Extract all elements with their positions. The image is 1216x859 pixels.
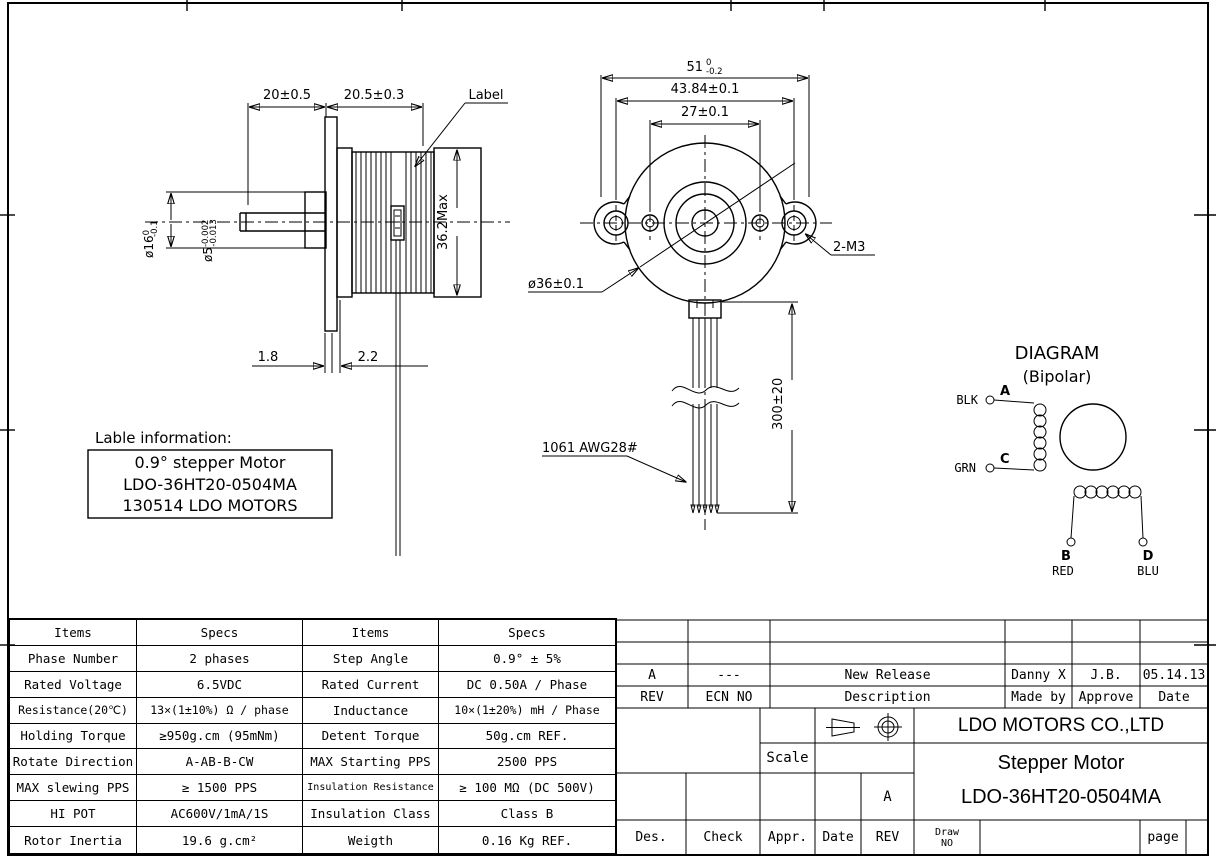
spec-header-items-1: Items	[10, 620, 137, 646]
terminal-b: B	[1061, 549, 1071, 564]
rev-value: A	[616, 664, 688, 686]
made-by-header: Made by	[1005, 686, 1072, 708]
wire-color-blu: BLU	[1137, 564, 1159, 578]
rev-header: REV	[616, 686, 688, 708]
front-view: 27±0.1 43.84±0.1 51 0 -0.2 ø36±0.1 2-M3 …	[528, 58, 875, 530]
spec-cell: 2500 PPS	[439, 749, 615, 775]
size-rev-value: A	[861, 773, 914, 820]
spec-cell: DC 0.50A / Phase	[439, 672, 615, 698]
terminal-a: A	[1000, 384, 1010, 399]
wire-bundle	[672, 300, 739, 513]
label-callout: Label	[468, 88, 503, 103]
dim-small-hole-span: 27±0.1	[681, 105, 729, 120]
footer-rev-label: REV	[861, 820, 914, 855]
dim-shaft-dia-base: ø5	[201, 247, 215, 262]
draw-no-line1: Draw	[935, 827, 959, 838]
dim-ear-hole-span: 43.84±0.1	[671, 82, 740, 97]
terminal-d: D	[1143, 549, 1154, 564]
dim-body-length: 20.5±0.3	[344, 88, 405, 103]
spec-header-items-2: Items	[303, 620, 439, 646]
dim-flange-thickness: 1.8	[258, 350, 279, 365]
dim-shaft-diameter: ø5-0.002-0.013	[201, 219, 219, 262]
screw-note: 2-M3	[833, 240, 865, 255]
wire-color-blk: BLK	[956, 393, 978, 407]
wiring-diagram: DIAGRAM (Bipolar) BLK A GRN C B RED	[954, 343, 1159, 578]
spec-cell: 50g.cm REF.	[439, 724, 615, 750]
product-model: LDO-36HT20-0504MA	[914, 779, 1208, 815]
dim-boss-dia-base: ø16	[142, 235, 156, 258]
dim-body-height: 36.2Max	[436, 194, 451, 250]
dim-overall-tol-bot: -0.2	[706, 67, 723, 77]
designed-label: Des.	[616, 820, 686, 855]
spec-cell: Insulation Resistance	[303, 775, 439, 801]
coil-ac	[986, 396, 1046, 472]
rotor-circle	[1060, 404, 1126, 470]
diagram-subtitle: (Bipolar)	[1023, 367, 1092, 386]
diagram-title: DIAGRAM	[1015, 343, 1100, 364]
spec-cell: ≥950g.cm (95mNm)	[137, 724, 303, 750]
footer-date-label: Date	[815, 820, 861, 855]
dim-shaft-length: 20±0.5	[263, 88, 311, 103]
company-name: LDO MOTORS CO.,LTD	[914, 708, 1208, 743]
spec-cell: Phase Number	[10, 646, 137, 672]
wire-spec-note: 1061 AWG28#	[542, 441, 638, 456]
spec-cell: Holding Torque	[10, 724, 137, 750]
spec-cell: Rotate Direction	[10, 749, 137, 775]
scale-label: Scale	[760, 743, 815, 773]
spec-cell: 0.9° ± 5%	[439, 646, 615, 672]
side-connector	[391, 206, 404, 556]
wire-color-red: RED	[1052, 564, 1074, 578]
draw-no-label: DrawNO	[914, 820, 980, 855]
spec-cell: Inductance	[303, 698, 439, 724]
wire-color-grn: GRN	[954, 461, 976, 475]
draw-no-line2: NO	[941, 838, 953, 849]
terminal-c: C	[1000, 452, 1010, 467]
dim-overall-width: 51	[686, 60, 703, 75]
dim-boss-diameter: ø160-0.1	[142, 220, 160, 258]
spec-cell: Step Angle	[303, 646, 439, 672]
dim-boss-tol-bot: -0.1	[150, 220, 160, 237]
spec-cell: Insulation Class	[303, 801, 439, 827]
spec-cell: Class B	[439, 801, 615, 827]
description-value: New Release	[770, 664, 1005, 686]
spec-cell: A-AB-B-CW	[137, 749, 303, 775]
page-label: page	[1140, 820, 1186, 855]
spec-cell: HI POT	[10, 801, 137, 827]
spec-cell: 0.16 Kg REF.	[439, 827, 615, 853]
side-view: 20±0.5 20.5±0.3 Label 1.8 2.2 ø160-0.1 ø…	[88, 88, 510, 556]
spec-cell: Rated Voltage	[10, 672, 137, 698]
dim-boss-length: 2.2	[358, 350, 379, 365]
label-info: Lable information: 0.9° stepper Motor LD…	[88, 429, 332, 518]
spec-cell: AC600V/1mA/1S	[137, 801, 303, 827]
coil-bd	[1067, 486, 1147, 546]
spec-cell: 2 phases	[137, 646, 303, 672]
approved-label: Appr.	[760, 820, 815, 855]
spec-cell: MAX slewing PPS	[10, 775, 137, 801]
label-info-line1: 0.9° stepper Motor	[134, 453, 285, 472]
spec-cell: Rotor Inertia	[10, 827, 137, 853]
label-info-heading: Lable information:	[95, 429, 232, 447]
date-value: 05.14.13	[1140, 664, 1208, 686]
spec-cell: 19.6 g.cm²	[137, 827, 303, 853]
dim-wire-length: 300±20	[771, 378, 786, 430]
made-by-value: Danny X	[1005, 664, 1072, 686]
spec-cell: 13×(1±10%) Ω / phase	[137, 698, 303, 724]
spec-cell: Detent Torque	[303, 724, 439, 750]
ecn-value: ---	[688, 664, 770, 686]
label-info-line3: 130514 LDO MOTORS	[122, 496, 297, 515]
dim-body-diameter: ø36±0.1	[528, 277, 584, 292]
spec-cell: 6.5VDC	[137, 672, 303, 698]
approve-value: J.B.	[1072, 664, 1140, 686]
spec-cell: ≥ 1500 PPS	[137, 775, 303, 801]
description-header: Description	[770, 686, 1005, 708]
approve-header: Approve	[1072, 686, 1140, 708]
dim-shaft-tol-bot: -0.013	[209, 219, 219, 246]
projection-symbols	[826, 713, 902, 741]
spec-header-specs-1: Specs	[137, 620, 303, 646]
ecn-header: ECN NO	[688, 686, 770, 708]
spec-cell: 10×(1±20%) mH / Phase	[439, 698, 615, 724]
spec-cell: Resistance(20℃)	[10, 698, 137, 724]
check-label: Check	[686, 820, 760, 855]
spec-cell: Rated Current	[303, 672, 439, 698]
spec-cell: MAX Starting PPS	[303, 749, 439, 775]
label-info-line2: LDO-36HT20-0504MA	[123, 475, 297, 494]
date-header: Date	[1140, 686, 1208, 708]
spec-cell: Weigth	[303, 827, 439, 853]
spec-cell: ≥ 100 MΩ (DC 500V)	[439, 775, 615, 801]
spec-table: Items Specs Items Specs Phase Number 2 p…	[8, 618, 617, 855]
product-title: Stepper Motor	[914, 745, 1208, 781]
drawing-sheet: 20±0.5 20.5±0.3 Label 1.8 2.2 ø160-0.1 ø…	[0, 0, 1216, 859]
spec-header-specs-2: Specs	[439, 620, 615, 646]
